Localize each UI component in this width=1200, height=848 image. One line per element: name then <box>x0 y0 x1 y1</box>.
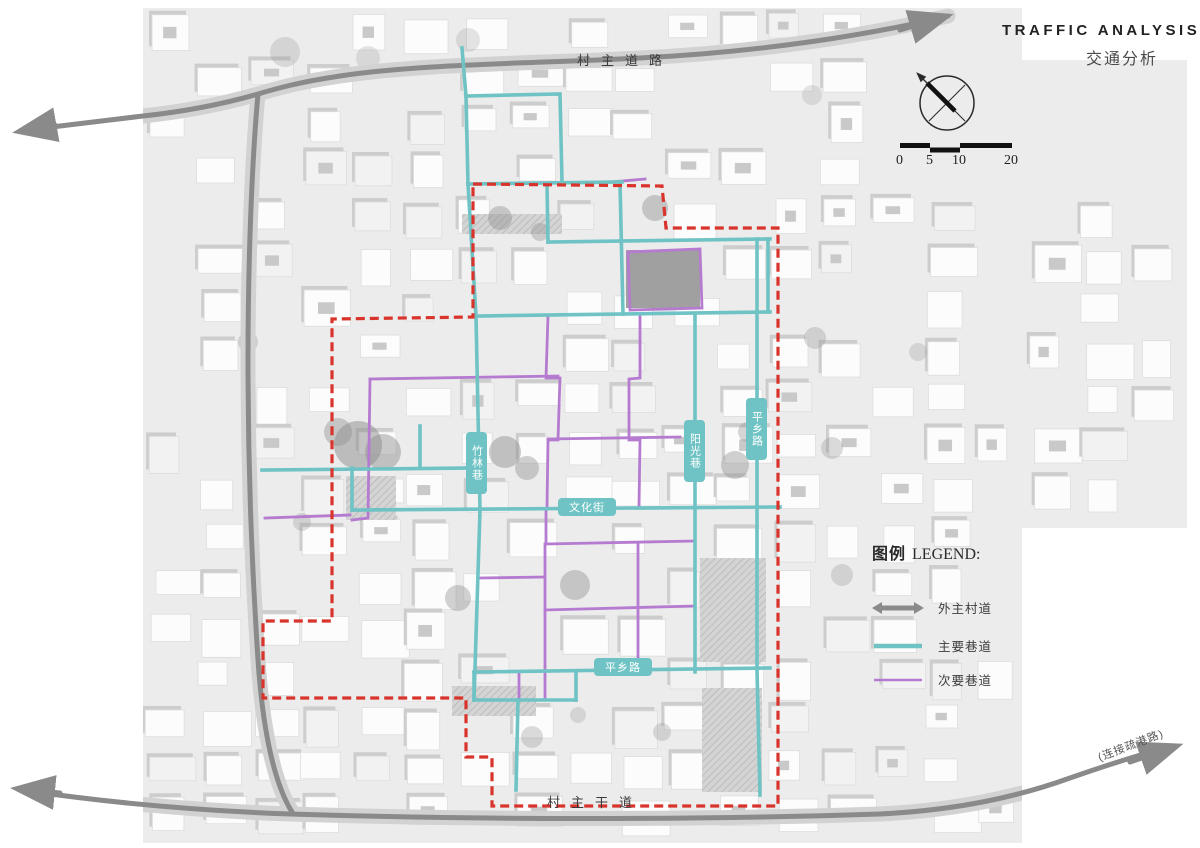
legend-title: 图例LEGEND: <box>872 540 1072 564</box>
legend-item-village-road: 外主村道 <box>872 598 992 617</box>
scale-label-20: 20 <box>1004 153 1018 169</box>
road-label-top: 村主道路 <box>577 50 673 69</box>
street-tag-yangguang: 阳光巷 <box>684 420 705 482</box>
purple-line-icon <box>872 673 924 687</box>
scale-label-0: 0 <box>896 153 903 169</box>
legend-item-main-lane: 主要巷道 <box>872 636 992 655</box>
street-tag-zhulin: 竹林巷 <box>466 432 487 494</box>
gray-double-arrow-icon <box>872 601 924 615</box>
traffic-analysis-page: TRAFFIC ANALYSIS 交通分析 0 5 10 20 村主道路 村主干… <box>0 0 1200 848</box>
street-tag-wenhua: 文化街 <box>558 498 616 516</box>
street-tag-pingxiang-right: 平乡路 <box>746 398 767 460</box>
legend-item-label: 主要巷道 <box>938 636 992 655</box>
page-subtitle: 交通分析 <box>1086 45 1158 69</box>
legend-item-label: 外主村道 <box>938 598 992 617</box>
legend-item-secondary-lane: 次要巷道 <box>872 670 992 689</box>
road-label-bottom: 村主干道 <box>547 792 643 811</box>
scale-label-10: 10 <box>952 153 966 169</box>
site-plan-svg <box>0 0 1200 848</box>
legend-title-zh: 图例 <box>872 546 906 563</box>
street-tag-pingxiang-bottom: 平乡路 <box>594 658 652 676</box>
legend-title-en: LEGEND: <box>912 546 980 563</box>
legend-item-label: 次要巷道 <box>938 670 992 689</box>
teal-line-icon <box>872 639 924 653</box>
scale-label-5: 5 <box>926 153 933 169</box>
legend: 图例LEGEND: 外主村道 主要巷道 次要巷道 <box>872 540 1072 700</box>
page-title: TRAFFIC ANALYSIS <box>1002 22 1200 39</box>
